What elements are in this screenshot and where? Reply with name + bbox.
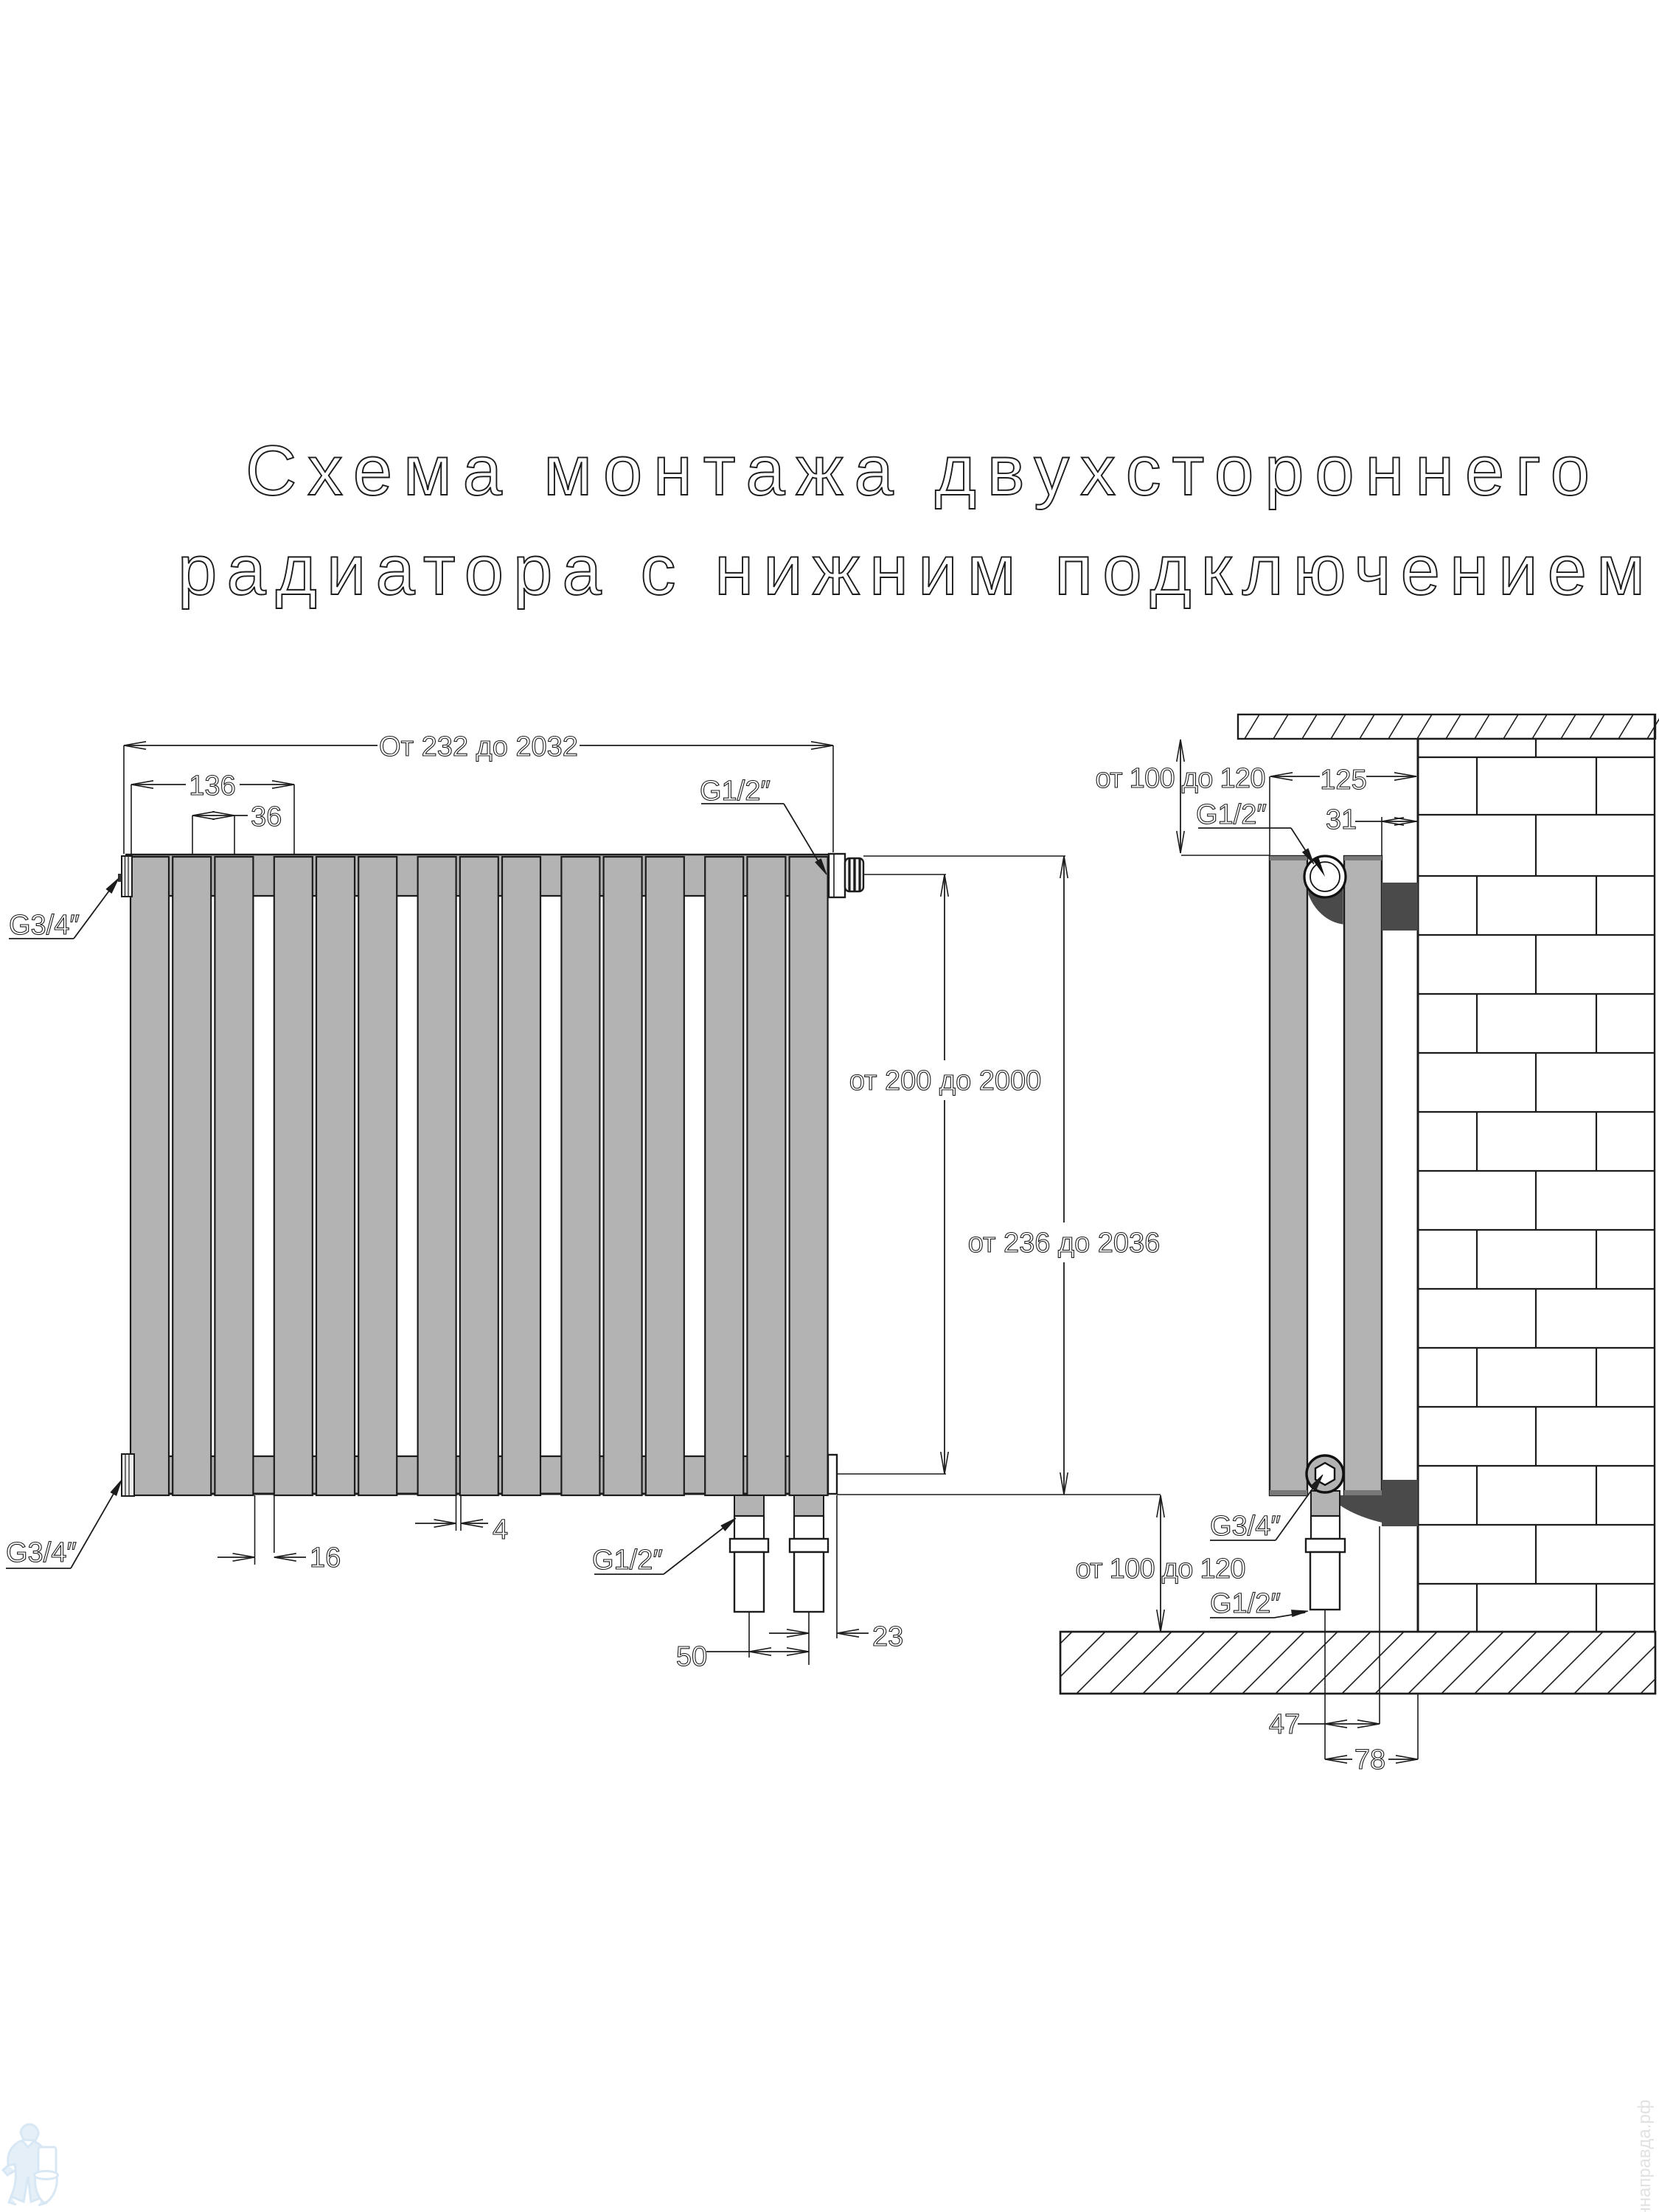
svg-text:50: 50: [676, 1641, 707, 1672]
svg-text:от 100 до 120: от 100 до 120: [1096, 763, 1266, 794]
svg-text:G1/2″: G1/2″: [1196, 799, 1267, 830]
svg-text:G1/2″: G1/2″: [700, 776, 771, 807]
svg-text:Схема монтажа двухстороннего: Схема монтажа двухстороннего: [246, 431, 1590, 510]
svg-text:G1/2″: G1/2″: [1210, 1588, 1281, 1619]
svg-text:136: 136: [189, 771, 235, 801]
svg-text:от 200 до 2000: от 200 до 2000: [849, 1065, 1042, 1096]
svg-text:36: 36: [251, 801, 282, 832]
svg-text:16: 16: [310, 1543, 341, 1573]
svg-text:47: 47: [1269, 1709, 1300, 1740]
svg-text:G3/4″: G3/4″: [6, 1537, 77, 1568]
svg-text:G3/4″: G3/4″: [1210, 1511, 1281, 1542]
svg-text:78: 78: [1354, 1745, 1385, 1775]
svg-text:От 232 до 2032: От 232 до 2032: [379, 731, 578, 762]
svg-text:125: 125: [1320, 765, 1366, 796]
svg-text:4: 4: [493, 1514, 508, 1545]
svg-text:ваннаправда.рф: ваннаправда.рф: [1635, 2100, 1655, 2212]
svg-text:G1/2″: G1/2″: [592, 1545, 663, 1576]
svg-text:23: 23: [872, 1621, 903, 1652]
svg-text:от 100 до 120: от 100 до 120: [1076, 1554, 1246, 1585]
svg-text:G3/4″: G3/4″: [9, 910, 80, 941]
svg-text:от 236 до 2036: от 236 до 2036: [968, 1228, 1161, 1259]
svg-text:31: 31: [1326, 804, 1357, 835]
